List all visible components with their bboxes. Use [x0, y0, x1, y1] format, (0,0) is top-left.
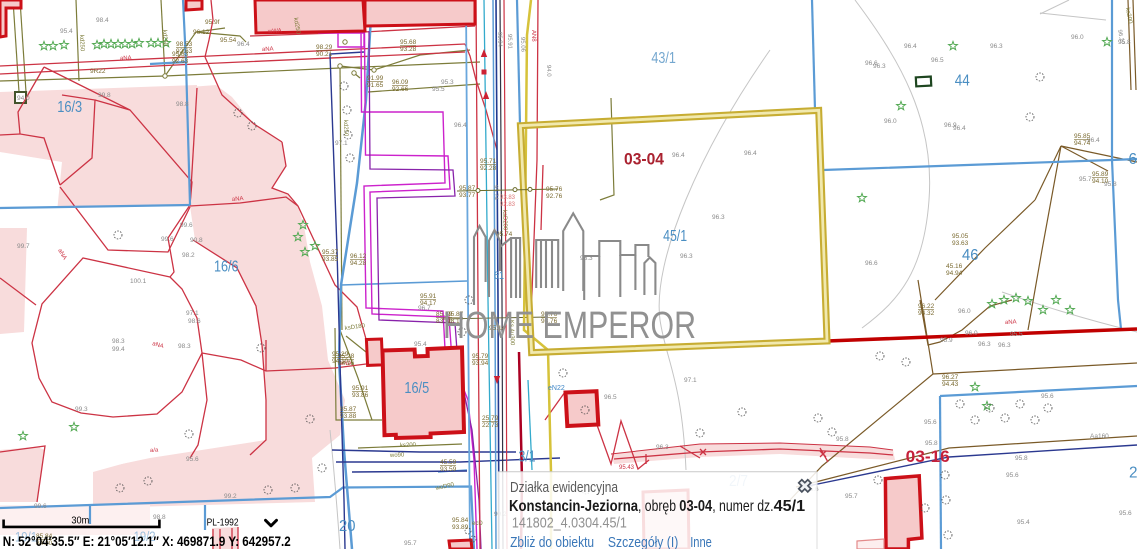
svg-text:95.91: 95.91 — [352, 385, 369, 392]
svg-text:95.84: 95.84 — [452, 517, 469, 524]
svg-text:96.0: 96.0 — [1071, 34, 1084, 41]
svg-text:22.73: 22.73 — [482, 422, 499, 429]
svg-text:95.3: 95.3 — [441, 79, 454, 86]
svg-text:6: 6 — [1129, 151, 1137, 168]
svg-text:96.0: 96.0 — [884, 118, 897, 125]
svg-text:95.06: 95.06 — [519, 37, 526, 53]
svg-text:Inne: Inne — [690, 535, 712, 549]
svg-text:93.85: 93.85 — [322, 256, 339, 263]
svg-text:99.8: 99.8 — [98, 92, 111, 99]
svg-text:95.8: 95.8 — [925, 440, 938, 447]
svg-text:61: 61 — [494, 270, 504, 282]
svg-text:93.59: 93.59 — [440, 466, 457, 473]
svg-text:96.6: 96.6 — [865, 260, 878, 267]
svg-text:96.4: 96.4 — [454, 122, 467, 129]
svg-text:98.4: 98.4 — [96, 17, 109, 24]
svg-text:96.3: 96.3 — [680, 253, 693, 260]
svg-text:95.4: 95.4 — [414, 341, 427, 348]
svg-text:97.1: 97.1 — [335, 140, 348, 147]
svg-text:95.6: 95.6 — [1006, 472, 1019, 479]
svg-text:95.6: 95.6 — [1041, 393, 1054, 400]
svg-text:Konstancin-Jeziorna: Konstancin-Jeziorna — [509, 498, 638, 515]
svg-text:94.32: 94.32 — [918, 310, 935, 317]
svg-text:aNA: aNA — [232, 196, 244, 203]
svg-text:95.85: 95.85 — [1074, 133, 1091, 140]
svg-text:96.3: 96.3 — [656, 444, 669, 451]
svg-text:03-04: 03-04 — [679, 498, 712, 515]
svg-text:95.5: 95.5 — [432, 86, 445, 93]
svg-text:96.3: 96.3 — [978, 341, 991, 348]
svg-text:20: 20 — [339, 518, 356, 535]
svg-text:96.6: 96.6 — [865, 60, 878, 67]
svg-text:a/a: a/a — [150, 448, 159, 454]
svg-text:98.8: 98.8 — [176, 101, 189, 108]
svg-text:95.37: 95.37 — [322, 249, 339, 256]
svg-text:99.4: 99.4 — [112, 346, 125, 353]
svg-text:95.7: 95.7 — [404, 540, 417, 547]
svg-text:kd250: kd250 — [78, 35, 85, 52]
svg-text:9R22: 9R22 — [90, 68, 106, 75]
svg-text:ks200: ks200 — [400, 442, 417, 449]
svg-text:96.4: 96.4 — [953, 125, 966, 132]
svg-text:94.74: 94.74 — [1074, 140, 1091, 147]
svg-text:ecD: ecD — [472, 521, 483, 527]
svg-text:94.0: 94.0 — [545, 65, 551, 78]
svg-text:16/5: 16/5 — [404, 380, 429, 397]
svg-text:96.12: 96.12 — [350, 253, 367, 260]
svg-text:wWA: wWA — [267, 28, 282, 35]
svg-text:96.3: 96.3 — [990, 43, 1003, 50]
svg-text:25.79: 25.79 — [482, 415, 499, 422]
svg-text:wo90: wo90 — [389, 452, 405, 459]
svg-text:98.29: 98.29 — [316, 44, 333, 51]
svg-text:91.65: 91.65 — [367, 82, 384, 89]
svg-text:44: 44 — [955, 73, 970, 90]
svg-text:45/1: 45/1 — [663, 228, 687, 245]
svg-text:95.4: 95.4 — [60, 28, 73, 35]
svg-text:90.8: 90.8 — [190, 237, 203, 244]
svg-text:96.0: 96.0 — [965, 330, 978, 337]
svg-text:92.63: 92.63 — [176, 48, 193, 55]
svg-text:94.94: 94.94 — [946, 270, 963, 277]
svg-text:96.5: 96.5 — [931, 57, 944, 64]
svg-text:95.29: 95.29 — [332, 351, 349, 358]
svg-text:92.28: 92.28 — [480, 165, 497, 172]
svg-text:94.17: 94.17 — [420, 300, 437, 307]
svg-text:45.59: 45.59 — [440, 459, 457, 466]
svg-text:96.09: 96.09 — [392, 79, 409, 86]
svg-text:93.63: 93.63 — [952, 240, 969, 247]
svg-text:96.27: 96.27 — [942, 374, 959, 381]
svg-text:90.21: 90.21 — [316, 51, 333, 58]
svg-text:94.28: 94.28 — [350, 260, 367, 267]
svg-text:45.16: 45.16 — [946, 263, 963, 270]
svg-text:03-04: 03-04 — [624, 149, 665, 168]
svg-text:N: 52°04′35.5″ E: 21°05′12.1″: N: 52°04′35.5″ E: 21°05′12.1″ X: 469871.… — [3, 534, 291, 549]
svg-text:96.3: 96.3 — [998, 342, 1011, 349]
svg-text:, numer dz.: , numer dz. — [712, 498, 773, 515]
svg-text:93.83: 93.83 — [500, 195, 516, 201]
svg-text:45/1: 45/1 — [774, 498, 806, 515]
svg-text:99.6: 99.6 — [34, 503, 47, 510]
svg-text:93.77: 93.77 — [459, 192, 476, 199]
svg-text:95.9f: 95.9f — [205, 19, 220, 26]
svg-text:16/3: 16/3 — [57, 99, 82, 116]
svg-text:92.83: 92.83 — [500, 202, 516, 208]
svg-text:95.74: 95.74 — [492, 185, 499, 201]
svg-text:aNA: aNA — [120, 55, 132, 62]
svg-text:ksD200: ksD200 — [501, 210, 508, 231]
svg-text:97.1: 97.1 — [186, 310, 199, 317]
svg-text:95.91: 95.91 — [506, 34, 513, 50]
svg-text:97.1: 97.1 — [684, 377, 697, 384]
svg-text:43/1: 43/1 — [651, 50, 676, 67]
svg-text:93.28: 93.28 — [400, 46, 417, 53]
svg-text:95.87: 95.87 — [459, 185, 476, 192]
svg-text:96.4: 96.4 — [904, 43, 917, 50]
svg-text:, obręb: , obręb — [638, 498, 679, 515]
svg-text:85.87: 85.87 — [340, 406, 357, 413]
svg-text:PL-1992: PL-1992 — [207, 516, 239, 528]
svg-text:95.8: 95.8 — [836, 436, 849, 443]
svg-text:96.4: 96.4 — [237, 41, 250, 48]
svg-text:99.7: 99.7 — [17, 243, 30, 250]
svg-text:95.7: 95.7 — [845, 493, 858, 500]
svg-text:kd250: kd250 — [161, 30, 168, 47]
svg-text:Szczegóły (I): Szczegóły (I) — [608, 535, 678, 549]
svg-text:95.5: 95.5 — [1010, 331, 1023, 338]
svg-text:92.66: 92.66 — [392, 86, 409, 93]
svg-text:95.89: 95.89 — [1092, 171, 1109, 178]
svg-text:95.71: 95.71 — [480, 158, 497, 165]
svg-text:95.79: 95.79 — [472, 353, 489, 360]
svg-text:96.4: 96.4 — [672, 152, 685, 159]
svg-text:98.6: 98.6 — [188, 318, 201, 325]
svg-text:94.0: 94.0 — [17, 95, 30, 102]
svg-text:91.99: 91.99 — [367, 75, 384, 82]
svg-text:95.4: 95.4 — [1017, 519, 1030, 526]
svg-text:98.3: 98.3 — [112, 338, 125, 345]
svg-text:95.8: 95.8 — [1015, 455, 1028, 462]
svg-text:96.22: 96.22 — [918, 303, 935, 310]
svg-text:aNA: aNA — [1005, 319, 1017, 326]
svg-text:93.94: 93.94 — [472, 360, 489, 367]
svg-text:92.76: 92.76 — [546, 193, 563, 200]
svg-text:94.10: 94.10 — [332, 358, 349, 365]
svg-text:03-16: 03-16 — [906, 447, 950, 466]
svg-text:99.6: 99.6 — [180, 222, 193, 229]
svg-text:92.63: 92.63 — [172, 58, 189, 65]
svg-text:95.6: 95.6 — [1119, 510, 1132, 517]
svg-text:99.3: 99.3 — [75, 406, 88, 413]
svg-text:98.3: 98.3 — [178, 343, 191, 350]
svg-text:95.9: 95.9 — [940, 337, 953, 344]
svg-text:2: 2 — [1129, 465, 1137, 482]
svg-text:95.91: 95.91 — [420, 293, 437, 300]
svg-text:96.0: 96.0 — [958, 308, 971, 315]
svg-text:95.76: 95.76 — [546, 186, 563, 193]
svg-text:94.10: 94.10 — [1092, 178, 1109, 185]
svg-text:93.86: 93.86 — [352, 392, 369, 399]
svg-text:93.88: 93.88 — [340, 413, 357, 420]
svg-text:46: 46 — [962, 247, 979, 264]
svg-text:98.2: 98.2 — [182, 252, 195, 259]
svg-text:aNA: aNA — [262, 46, 274, 53]
svg-text:99.6: 99.6 — [161, 236, 174, 243]
svg-text:100.1: 100.1 — [130, 278, 147, 285]
svg-text:3/1: 3/1 — [519, 448, 536, 465]
svg-text:95.7: 95.7 — [1079, 176, 1092, 183]
svg-text:95.43: 95.43 — [619, 465, 635, 471]
svg-text:16/6: 16/6 — [214, 259, 239, 276]
svg-text:95.6: 95.6 — [186, 456, 199, 463]
svg-text:95.68: 95.68 — [400, 39, 417, 46]
svg-text:94.43: 94.43 — [942, 381, 959, 388]
svg-text:AN8: AN8 — [530, 30, 536, 43]
svg-text:Aa160: Aa160 — [1090, 433, 1109, 440]
svg-text:95.6: 95.6 — [924, 419, 937, 426]
svg-text:96.3: 96.3 — [712, 214, 725, 221]
svg-text:96.4: 96.4 — [744, 150, 757, 157]
svg-text:93.89: 93.89 — [452, 524, 469, 531]
svg-text:eN22: eN22 — [548, 385, 565, 392]
svg-text:Działka ewidencyjna: Działka ewidencyjna — [510, 479, 619, 496]
svg-text:95.05: 95.05 — [952, 233, 969, 240]
svg-text:96.5: 96.5 — [604, 394, 617, 401]
svg-text:98.53: 98.53 — [176, 41, 193, 48]
svg-text:96.12: 96.12 — [193, 29, 210, 36]
svg-text:95.94: 95.94 — [496, 32, 503, 48]
svg-text:95.54: 95.54 — [220, 37, 237, 44]
svg-text:HOME EMPEROR: HOME EMPEROR — [443, 305, 696, 347]
svg-text:kd250: kd250 — [342, 120, 349, 137]
svg-text:141802_4.0304.45/1: 141802_4.0304.45/1 — [512, 514, 627, 531]
svg-text:Zbliż do obiektu: Zbliż do obiektu — [510, 535, 594, 549]
svg-text:99.2: 99.2 — [224, 493, 237, 500]
svg-text:30m: 30m — [71, 514, 89, 526]
